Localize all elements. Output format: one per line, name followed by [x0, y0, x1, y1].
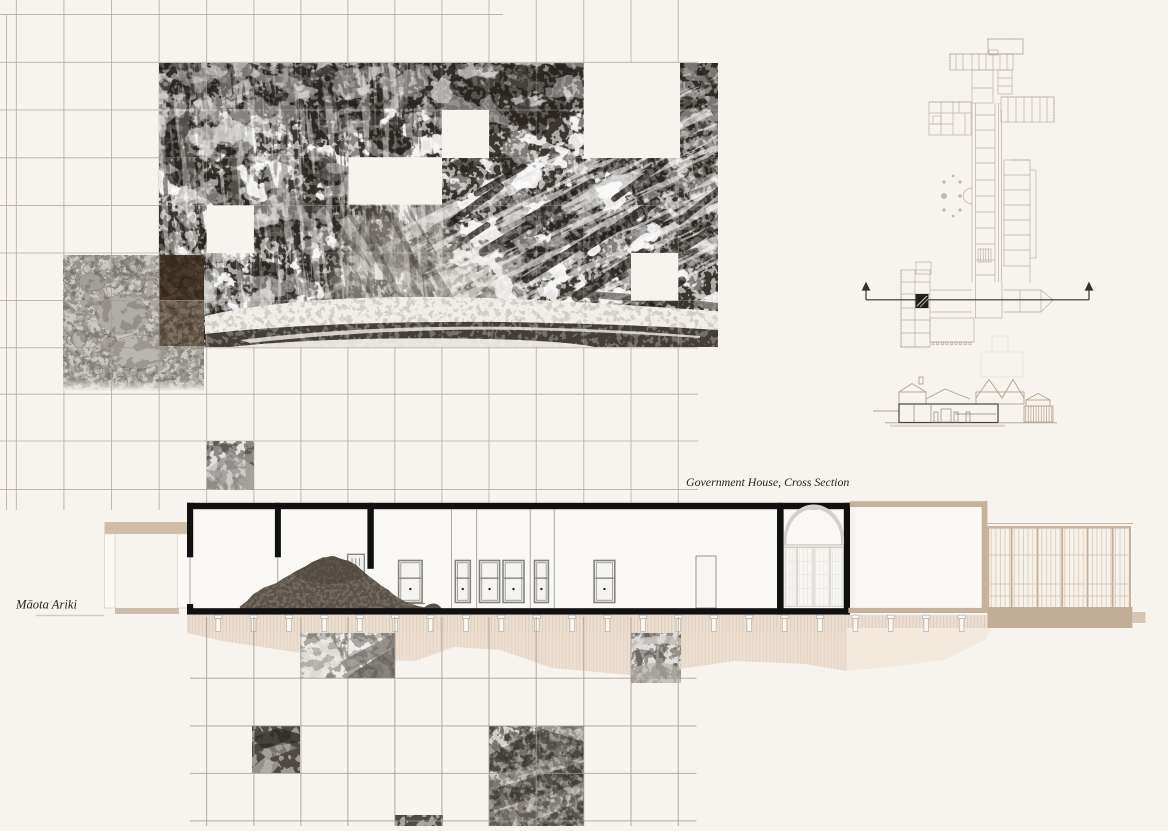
svg-text:Māota Ariki: Māota Ariki — [15, 598, 77, 612]
svg-text:Government House, Cross Sectio: Government House, Cross Section — [686, 475, 849, 489]
